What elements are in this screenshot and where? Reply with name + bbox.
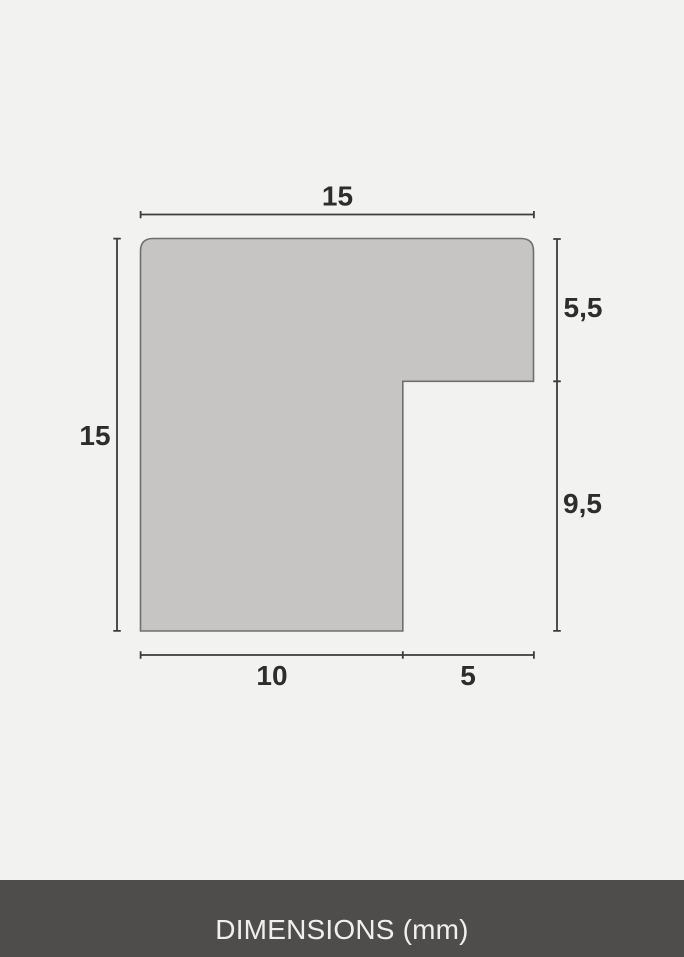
svg-text:5: 5	[460, 660, 476, 691]
svg-text:9,5: 9,5	[563, 488, 602, 519]
svg-text:5,5: 5,5	[564, 292, 603, 323]
svg-text:10: 10	[256, 660, 287, 691]
svg-text:15: 15	[322, 181, 353, 212]
svg-text:15: 15	[79, 420, 110, 451]
